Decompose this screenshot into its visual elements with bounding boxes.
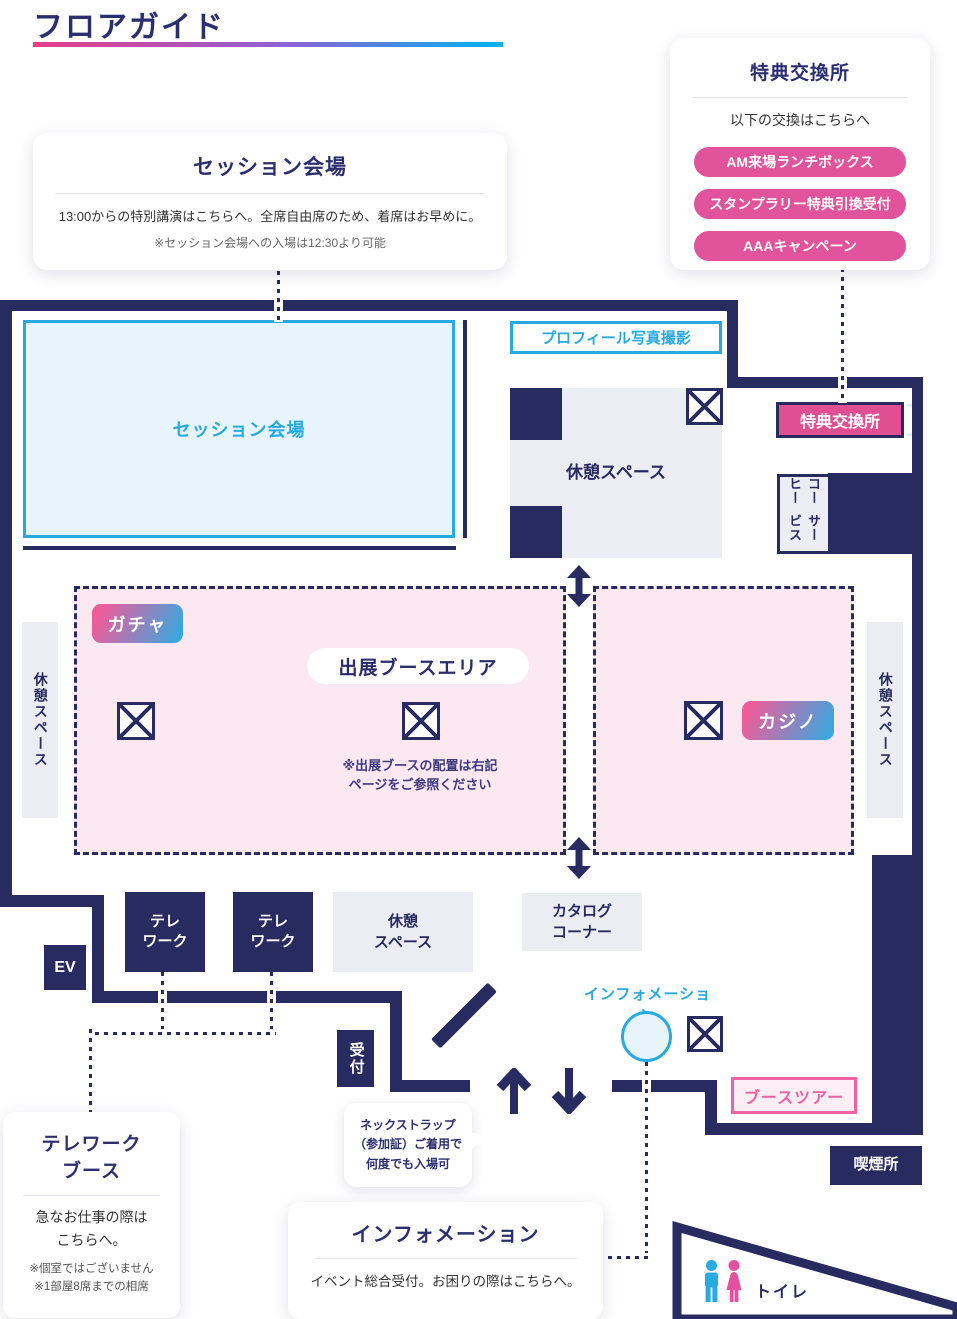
benefit-card-title: 特典交換所 [670, 58, 930, 85]
session-venue-card: セッション会場 13:00からの特別講演はこちらへ。全席自由席のため、着席はお早… [33, 133, 507, 270]
connector-telework-h [86, 1029, 276, 1038]
crossed-box-icon [402, 702, 440, 740]
gacha-badge: ガチャ [92, 604, 183, 643]
session-card-body: 13:00からの特別講演はこちらへ。全席自由席のため、着席はお早めに。 [43, 206, 497, 225]
crossed-box-icon [686, 388, 723, 425]
benefit-item-stamp-rally: スタンプラリー特典引換受付 [694, 189, 906, 219]
session-room-inner-wall-v [463, 320, 467, 538]
coffee-service-wall-block [828, 473, 914, 554]
aisle-double-arrow-icon [564, 564, 594, 608]
wall-left [0, 300, 12, 907]
man-pictogram-icon [702, 1260, 721, 1303]
telework-block-1: テレワーク [125, 892, 205, 972]
rest-space-top-block-2 [510, 506, 562, 558]
benefit-booth-badge: 特典交換所 [776, 402, 904, 438]
crossed-box-icon [684, 701, 723, 740]
divider [23, 1195, 160, 1196]
entrance-up-arrow-icon [496, 1068, 532, 1114]
wall-topright-step-v [727, 300, 738, 388]
benefit-exchange-card: 特典交換所 以下の交換はこちらへ AM来場ランチボックス スタンプラリー特典引換… [670, 38, 930, 270]
smoking-area-block: 喫煙所 [830, 1146, 922, 1185]
benefit-item-campaign: AAAキャンペーン [694, 231, 906, 261]
aisle-double-arrow-icon [564, 836, 594, 880]
wall-top [0, 300, 738, 311]
wall-bottom-right [705, 1123, 923, 1135]
connector-information-v [642, 1062, 651, 1260]
door-swing-icon [431, 983, 497, 1049]
rest-space-bottom-area: 休憩スペース [333, 892, 473, 972]
neck-strap-bubble: ネックストラップ （参加証）ご着用で 何度でも入場可 [344, 1103, 472, 1187]
session-room-inner-wall-h [23, 546, 456, 550]
connector-telework-card [86, 1029, 95, 1115]
page-title: フロアガイド [33, 2, 225, 46]
wall-bottom-left [92, 991, 402, 1003]
elevator-block: EV [44, 945, 86, 990]
session-room-area: セッション会場 [23, 320, 455, 538]
wall-entry-left-h [390, 1080, 470, 1092]
session-card-title: セッション会場 [33, 151, 507, 181]
toilet-label: トイレ [755, 1278, 809, 1302]
wall-right [912, 377, 923, 857]
coffee-service-label: コーヒー サービス [777, 474, 831, 554]
title-underline-gradient [33, 42, 503, 47]
connector-session-card [274, 271, 283, 322]
information-card-body: イベント総合受付。お困りの際はこちらへ。 [288, 1270, 603, 1290]
telework-booth-card: テレワーク ブース 急なお仕事の際は こちらへ。 ※個室ではございません ※1部… [3, 1112, 180, 1318]
telework-card-notes: ※個室ではございません ※1部屋8席までの相席 [3, 1261, 180, 1297]
rest-space-top-block-1 [510, 388, 562, 440]
divider [692, 97, 908, 98]
benefit-card-subtitle: 以下の交換はこちらへ [670, 110, 930, 130]
wall-topright-step-h [738, 377, 923, 388]
catalog-corner-area: カタログコーナー [522, 893, 642, 951]
floor-guide-page: フロアガイド セッション会場 プロフィール写真撮影 休憩スペース 特典交換所 コ… [0, 0, 957, 1319]
casino-badge: カジノ [742, 701, 834, 740]
wall-bottomleft-step-h [0, 895, 104, 907]
booth-tour-badge: ブースツアー [731, 1077, 857, 1114]
profile-photo-booth-label: プロフィール写真撮影 [510, 321, 722, 354]
rest-space-left-strip: 休憩スペース [22, 622, 58, 818]
session-room-label: セッション会場 [173, 416, 306, 442]
connector-information-h [599, 1253, 651, 1262]
divider [55, 193, 485, 194]
wall-entry-left-v [390, 991, 402, 1092]
telework-card-body: 急なお仕事の際は こちらへ。 [3, 1206, 180, 1251]
session-card-note: ※セッション会場への入場は12:30より可能 [33, 234, 507, 251]
connector-benefit-card [838, 268, 847, 403]
crossed-box-icon [117, 702, 155, 740]
information-card: インフォメーション イベント総合受付。お困りの際はこちらへ。 [288, 1202, 603, 1319]
booth-area-note: ※出展ブースの配置は右記 ページをご参照ください [325, 757, 515, 795]
connector-telework-1 [158, 972, 167, 1035]
telework-card-title: テレワーク ブース [3, 1132, 180, 1185]
connector-telework-2 [267, 972, 276, 1035]
information-desk-icon [621, 1011, 672, 1062]
entrance-down-arrow-icon [551, 1068, 587, 1114]
reception-block: 受付 [337, 1030, 374, 1087]
booth-area-title: 出展ブースエリア [307, 648, 529, 684]
crossed-box-icon [687, 1016, 723, 1052]
wall-bottomleft-step-v [92, 895, 104, 1003]
wall-entry-right-h [612, 1080, 717, 1092]
information-card-title: インフォメーション [288, 1218, 603, 1247]
telework-block-2: テレワーク [233, 892, 313, 972]
benefit-item-lunchbox: AM来場ランチボックス [694, 147, 906, 177]
rest-space-right-strip: 休憩スペース [867, 622, 903, 818]
divider [314, 1258, 577, 1259]
woman-pictogram-icon [724, 1260, 744, 1303]
wall-right-block [872, 855, 923, 1135]
